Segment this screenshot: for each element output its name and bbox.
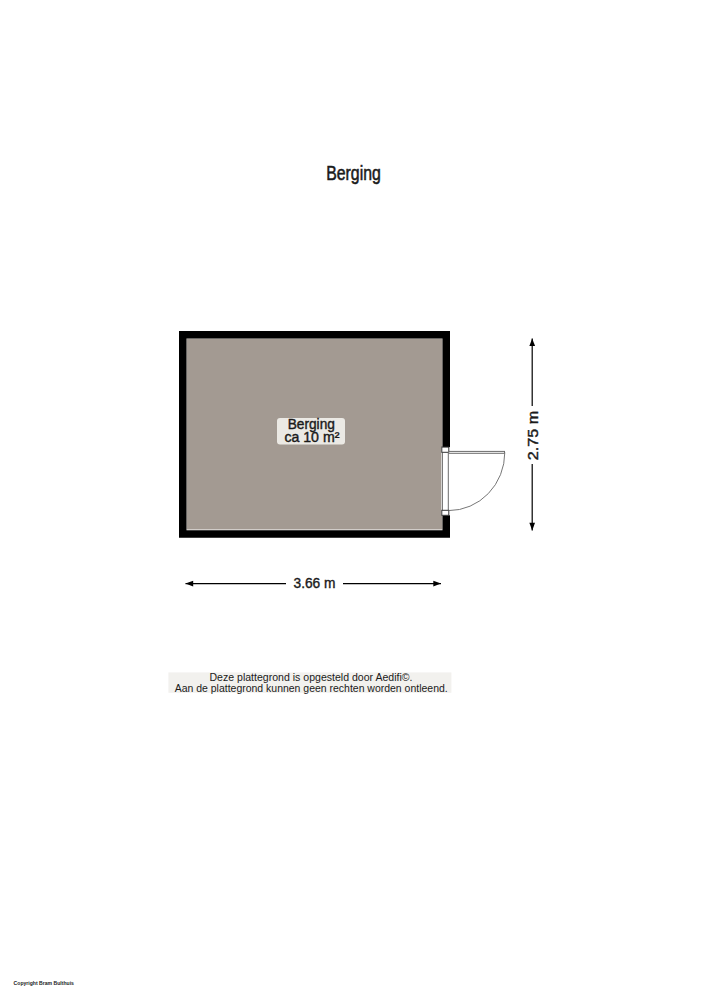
svg-text:ca 10 m²: ca 10 m² [284,429,339,445]
svg-text:Aan de plattegrond kunnen geen: Aan de plattegrond kunnen geen rechten w… [175,682,448,694]
svg-text:2.75 m: 2.75 m [524,411,541,460]
svg-text:3.66 m: 3.66 m [294,574,336,591]
svg-text:Berging: Berging [326,162,381,184]
svg-text:Copyright Bram Bulthuis: Copyright Bram Bulthuis [14,979,75,986]
